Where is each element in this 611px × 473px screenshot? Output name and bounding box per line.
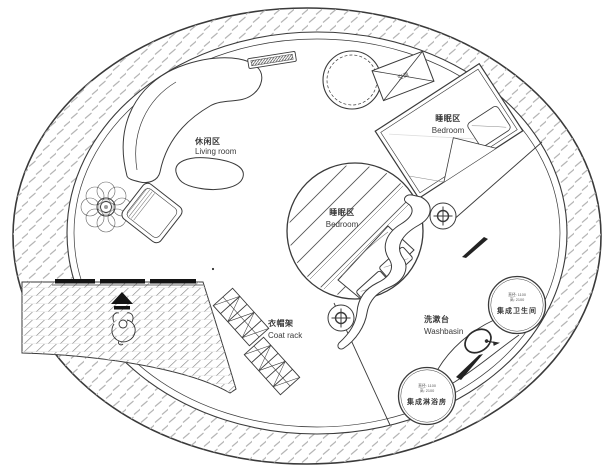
- bedroom-loft-label-en: Bedroom: [432, 126, 465, 135]
- coat-rack-label-zh: 衣帽架: [268, 318, 294, 328]
- washbasin-label-zh: 洗漱台: [424, 314, 450, 324]
- shower-dim-2: 高: 2100: [420, 388, 434, 393]
- living-label-en: Living room: [195, 147, 237, 156]
- floor-plan-drawing: 空调: [0, 0, 611, 473]
- shower-dim-1: 直径: 1100: [418, 383, 436, 388]
- plan-dot: [212, 268, 214, 270]
- bathroom-dim-1: 直径: 1100: [508, 292, 526, 297]
- round-table: [323, 51, 381, 109]
- target-marker-icon: [430, 203, 456, 229]
- living-label-zh: 休闲区: [194, 136, 221, 146]
- bathroom-pod: 直径: 1100 高: 2100 集成卫生间: [489, 277, 546, 334]
- bedroom-loft-label-zh: 睡眠区: [435, 113, 461, 123]
- bathroom-label: 集成卫生间: [496, 306, 537, 315]
- floor-plan-canvas: 空调: [0, 0, 611, 473]
- bathroom-dim-2: 高: 2100: [510, 297, 524, 302]
- target-marker-icon: [328, 305, 354, 331]
- sliding-door-track: [55, 279, 196, 284]
- coat-rack-label-en: Coat rack: [268, 331, 303, 340]
- shower-label: 集成淋浴房: [406, 397, 447, 406]
- washbasin-label-en: Washbasin: [424, 327, 463, 336]
- bedroom-main-label-en: Bedroom: [326, 220, 359, 229]
- bedroom-main-label-zh: 睡眠区: [329, 207, 355, 217]
- shower-pod: 直径: 1100 高: 2100 集成淋浴房: [399, 368, 456, 425]
